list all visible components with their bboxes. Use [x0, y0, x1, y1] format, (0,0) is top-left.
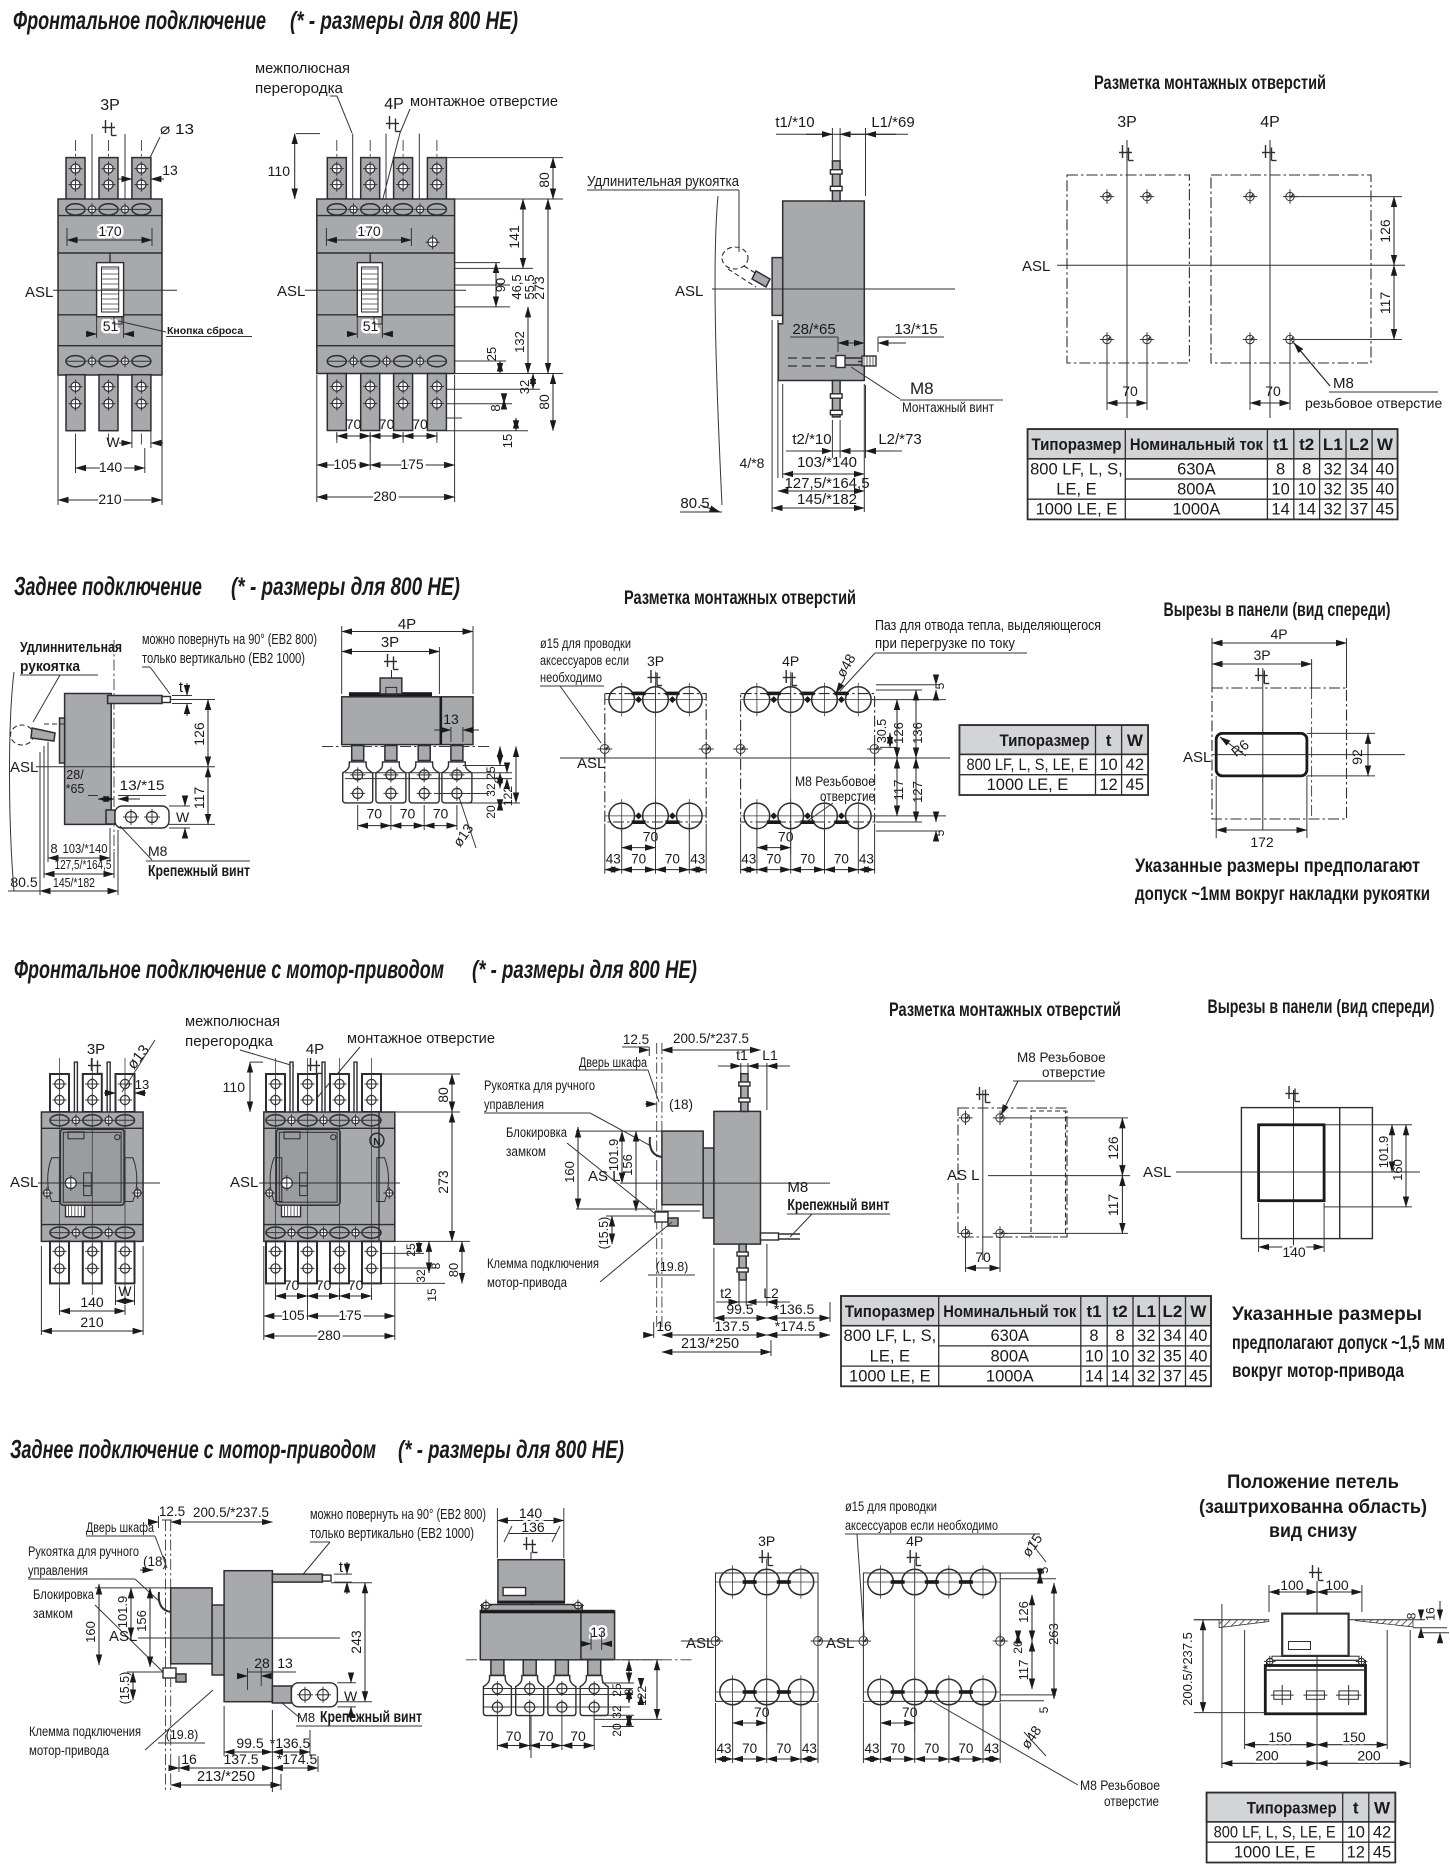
svg-text:W: W [176, 809, 190, 825]
svg-text:t: t [1353, 1799, 1359, 1818]
svg-text:5: 5 [933, 682, 947, 689]
svg-text:ASL: ASL [826, 1635, 854, 1652]
svg-text:только вертикально (EB2 1000): только вертикально (EB2 1000) [310, 1526, 474, 1542]
svg-text:80.5: 80.5 [680, 495, 709, 512]
svg-text:8: 8 [1089, 1327, 1098, 1345]
svg-text:межполюсная: межполюсная [185, 1014, 280, 1030]
svg-text:70: 70 [1122, 383, 1138, 399]
svg-text:42: 42 [1373, 1823, 1391, 1841]
svg-text:55,5: 55,5 [522, 274, 537, 299]
svg-text:28/: 28/ [66, 768, 84, 782]
svg-text:Рукоятка для ручного: Рукоятка для ручного [28, 1544, 139, 1559]
svg-text:Положение петель: Положение петель [1227, 1471, 1399, 1493]
svg-text:15: 15 [425, 1288, 439, 1302]
svg-text:ASL: ASL [1143, 1164, 1171, 1181]
svg-text:70: 70 [1265, 383, 1281, 399]
svg-text:137.5: 137.5 [714, 1318, 749, 1334]
svg-text:t: t [1106, 731, 1112, 750]
svg-text:101.9: 101.9 [1376, 1136, 1391, 1169]
svg-text:Типоразмер: Типоразмер [1000, 731, 1090, 750]
svg-text:70: 70 [834, 852, 849, 867]
svg-text:5: 5 [1037, 1706, 1051, 1713]
svg-text:43: 43 [690, 852, 705, 867]
svg-text:70: 70 [379, 416, 395, 432]
svg-text:12.5: 12.5 [623, 1032, 649, 1047]
svg-text:103/*140: 103/*140 [797, 454, 857, 471]
svg-text:80: 80 [536, 172, 552, 188]
svg-text:175: 175 [338, 1307, 362, 1323]
svg-text:8: 8 [1116, 1327, 1125, 1345]
svg-text:12.5: 12.5 [159, 1504, 185, 1519]
svg-text:32: 32 [517, 380, 532, 394]
svg-text:Заднее подключение с мотор-при: Заднее подключение с мотор-приводом [10, 1434, 376, 1464]
svg-text:(15.5): (15.5) [118, 1672, 132, 1705]
svg-text:136: 136 [521, 1519, 545, 1535]
svg-text:Указанные размеры: Указанные размеры [1232, 1303, 1422, 1325]
svg-text:L1/*69: L1/*69 [871, 114, 914, 131]
svg-text:20: 20 [610, 1723, 624, 1737]
svg-text:32: 32 [484, 783, 498, 797]
svg-text:L2/*73: L2/*73 [878, 431, 921, 448]
svg-text:управления: управления [28, 1563, 88, 1578]
svg-text:140: 140 [80, 1294, 104, 1310]
svg-text:ASL: ASL [277, 283, 305, 300]
svg-text:Клемма подключения: Клемма подключения [29, 1724, 141, 1739]
svg-text:8: 8 [1302, 460, 1311, 478]
svg-text:101.9: 101.9 [115, 1596, 130, 1629]
svg-text:70: 70 [538, 1728, 554, 1744]
svg-text:Крепежный винт: Крепежный винт [787, 1197, 889, 1214]
svg-text:вокруг мотор-привода: вокруг мотор-привода [1232, 1360, 1404, 1382]
svg-text:4/*8: 4/*8 [740, 455, 765, 471]
svg-text:Блокировка: Блокировка [506, 1125, 567, 1140]
svg-text:70: 70 [367, 806, 383, 822]
svg-text:210: 210 [80, 1314, 104, 1330]
svg-text:150: 150 [1268, 1729, 1292, 1745]
svg-text:117: 117 [191, 787, 207, 810]
svg-text:150: 150 [1342, 1729, 1366, 1745]
svg-text:L1: L1 [1136, 1302, 1156, 1321]
svg-text:t1: t1 [736, 1047, 748, 1063]
svg-text:800 LF, L, S,: 800 LF, L, S, [1030, 460, 1123, 478]
svg-text:51: 51 [103, 318, 119, 334]
svg-text:перегородка: перегородка [185, 1034, 274, 1050]
svg-text:13/*15: 13/*15 [894, 321, 937, 338]
svg-text:(15.5): (15.5) [597, 1217, 611, 1250]
svg-text:отверстие: отверстие [1042, 1065, 1105, 1080]
svg-text:L1: L1 [1323, 435, 1343, 454]
svg-text:70: 70 [346, 416, 362, 432]
svg-text:можно повернуть на 90° (EB2 80: можно повернуть на 90° (EB2 800) [310, 1507, 486, 1523]
svg-text:40: 40 [1189, 1327, 1207, 1345]
svg-text:10: 10 [1298, 481, 1316, 499]
svg-text:16: 16 [181, 1751, 197, 1767]
svg-text:аксессуаров если: аксессуаров если [540, 653, 629, 668]
svg-text:105: 105 [281, 1307, 305, 1323]
svg-text:80: 80 [446, 1263, 461, 1277]
svg-text:200: 200 [1357, 1748, 1381, 1764]
svg-text:800 LF, L, S, LE, E: 800 LF, L, S, LE, E [966, 756, 1088, 774]
svg-text:Типоразмер: Типоразмер [845, 1302, 935, 1321]
svg-text:263: 263 [1046, 1623, 1061, 1645]
svg-text:t2: t2 [720, 1285, 732, 1301]
svg-text:1000 LE, E: 1000 LE, E [1036, 501, 1118, 519]
svg-text:160: 160 [83, 1621, 98, 1643]
svg-text:Фронтальное подключение: Фронтальное подключение [13, 5, 266, 35]
svg-text:Фронтальное подключение с мото: Фронтальное подключение с мотор-приводом [14, 954, 444, 984]
svg-text:Типоразмер: Типоразмер [1031, 435, 1121, 454]
svg-text:Блокировка: Блокировка [33, 1587, 94, 1602]
svg-text:Дверь шкафа: Дверь шкафа [86, 1520, 154, 1535]
svg-text:t2: t2 [1113, 1302, 1128, 1321]
svg-text:8: 8 [492, 776, 506, 783]
svg-text:*136.5: *136.5 [774, 1301, 815, 1317]
svg-text:Дверь шкафа: Дверь шкафа [579, 1055, 647, 1070]
svg-text:14: 14 [1298, 501, 1316, 519]
svg-text:3P: 3P [647, 653, 664, 669]
svg-text:LE, E: LE, E [870, 1347, 910, 1365]
svg-text:70: 70 [643, 829, 659, 845]
svg-text:70: 70 [570, 1728, 586, 1744]
svg-text:170: 170 [98, 223, 122, 239]
svg-text:M8: M8 [787, 1179, 808, 1196]
svg-text:4P: 4P [1270, 626, 1287, 642]
svg-text:126: 126 [1377, 219, 1393, 243]
svg-text:W: W [1190, 1302, 1207, 1321]
svg-text:Номинальный ток: Номинальный ток [943, 1302, 1076, 1321]
svg-text:4P: 4P [1260, 114, 1280, 131]
svg-text:12: 12 [1347, 1844, 1365, 1862]
svg-text:280: 280 [317, 1327, 341, 1343]
svg-text:перегородка: перегородка [255, 81, 344, 97]
svg-text:(18): (18) [669, 1097, 693, 1112]
svg-text:8: 8 [50, 841, 57, 856]
svg-text:126: 126 [891, 722, 906, 744]
svg-text:межполюсная: межполюсная [255, 61, 350, 77]
svg-text:L2: L2 [763, 1285, 779, 1301]
svg-text:25: 25 [484, 347, 499, 361]
svg-text:140: 140 [99, 459, 123, 475]
svg-text:5: 5 [1037, 1566, 1051, 1573]
svg-text:43: 43 [741, 852, 756, 867]
svg-text:156: 156 [620, 1154, 635, 1176]
svg-text:99.5: 99.5 [236, 1735, 263, 1751]
svg-text:800A: 800A [1177, 481, 1216, 499]
svg-text:13/*15: 13/*15 [120, 778, 165, 793]
svg-text:70: 70 [924, 1741, 939, 1756]
svg-text:34: 34 [1163, 1327, 1181, 1345]
svg-text:35: 35 [1350, 481, 1368, 499]
svg-text:92: 92 [1349, 749, 1365, 765]
svg-text:13: 13 [277, 1655, 293, 1671]
svg-text:*174.5: *174.5 [277, 1751, 318, 1767]
svg-text:32: 32 [1324, 460, 1342, 478]
svg-text:(19.8): (19.8) [656, 1260, 689, 1274]
svg-text:213/*250: 213/*250 [681, 1336, 739, 1352]
svg-text:ASL: ASL [109, 1628, 137, 1645]
svg-text:Указанные размеры предполагают: Указанные размеры предполагают [1135, 855, 1420, 877]
svg-text:Разметка монтажных отверстий: Разметка монтажных отверстий [889, 1000, 1121, 1021]
svg-text:117: 117 [1377, 292, 1393, 315]
svg-text:Удлиннительная: Удлиннительная [20, 639, 122, 656]
svg-text:172: 172 [1250, 834, 1274, 850]
svg-text:Разметка монтажных отверстий: Разметка монтажных отверстий [1094, 73, 1326, 94]
svg-text:14: 14 [1271, 501, 1289, 519]
svg-text:W: W [1374, 1799, 1391, 1818]
svg-text:43: 43 [802, 1741, 817, 1756]
svg-text:L2: L2 [1349, 435, 1369, 454]
svg-text:M8: M8 [1333, 375, 1354, 392]
svg-text:132: 132 [512, 331, 527, 353]
svg-text:LE, E: LE, E [1056, 481, 1096, 499]
svg-text:43: 43 [859, 852, 874, 867]
svg-text:800 LF, L, S, LE, E: 800 LF, L, S, LE, E [1214, 1823, 1336, 1841]
svg-text:3P: 3P [87, 1041, 105, 1058]
svg-text:200.5/*237.5: 200.5/*237.5 [673, 1031, 749, 1046]
svg-text:8: 8 [1405, 1612, 1419, 1619]
svg-text:160: 160 [562, 1161, 577, 1183]
svg-text:1000A: 1000A [1172, 501, 1220, 519]
svg-text:t1: t1 [1273, 435, 1288, 454]
svg-text:14: 14 [1111, 1368, 1129, 1386]
svg-text:предполагают допуск ~1,5 мм: предполагают допуск ~1,5 мм [1232, 1332, 1445, 1354]
svg-text:43: 43 [606, 852, 621, 867]
svg-text:замком: замком [33, 1606, 73, 1621]
svg-text:(19.8): (19.8) [166, 1728, 199, 1742]
svg-text:70: 70 [631, 852, 646, 867]
svg-text:1000 LE, E: 1000 LE, E [987, 776, 1069, 794]
svg-text:127,5/*164,5: 127,5/*164,5 [784, 475, 869, 492]
svg-text:126: 126 [1105, 1136, 1121, 1160]
svg-text:10: 10 [1085, 1347, 1103, 1365]
svg-text:12: 12 [1099, 776, 1117, 794]
svg-text:t1/*10: t1/*10 [775, 114, 814, 131]
svg-text:70: 70 [400, 806, 416, 822]
svg-text:t2/*10: t2/*10 [792, 431, 831, 448]
svg-text:800 LF, L, S,: 800 LF, L, S, [844, 1327, 937, 1345]
svg-text:вид снизу: вид снизу [1269, 1520, 1357, 1542]
svg-text:10: 10 [1271, 481, 1289, 499]
svg-text:80: 80 [536, 394, 552, 410]
svg-text:43: 43 [717, 1741, 732, 1756]
svg-text:70: 70 [902, 1704, 918, 1720]
svg-text:Клемма подключения: Клемма подключения [487, 1256, 599, 1271]
svg-text:273: 273 [435, 1170, 451, 1194]
svg-text:122: 122 [635, 1686, 649, 1706]
svg-text:42: 42 [1126, 756, 1144, 774]
svg-text:99.5: 99.5 [726, 1301, 753, 1317]
svg-text:ASL: ASL [686, 1635, 714, 1652]
svg-text:122: 122 [501, 786, 515, 806]
svg-text:15: 15 [500, 434, 515, 448]
svg-text:800A: 800A [990, 1347, 1029, 1365]
svg-text:70: 70 [412, 416, 428, 432]
svg-text:32: 32 [1137, 1327, 1155, 1345]
svg-text:(* - размеры для 800 НЕ): (* - размеры для 800 НЕ) [472, 956, 697, 984]
svg-text:126: 126 [191, 722, 207, 746]
svg-text:37: 37 [1163, 1368, 1181, 1386]
svg-text:8: 8 [488, 404, 503, 411]
svg-text:Заднее подключение: Заднее подключение [14, 571, 202, 601]
svg-text:45: 45 [1126, 776, 1144, 794]
svg-text:45: 45 [1189, 1368, 1207, 1386]
svg-text:80.5: 80.5 [10, 874, 37, 890]
svg-text:175: 175 [400, 456, 424, 472]
svg-text:140: 140 [1282, 1244, 1306, 1260]
svg-text:100: 100 [1280, 1577, 1304, 1593]
svg-text:⌀ 13: ⌀ 13 [160, 121, 194, 138]
svg-text:Вырезы в панели (вид спереди): Вырезы в панели (вид спереди) [1164, 600, 1391, 621]
svg-text:70: 70 [800, 852, 815, 867]
svg-text:110: 110 [223, 1079, 246, 1095]
svg-text:отверстие: отверстие [820, 789, 875, 804]
svg-text:L1: L1 [762, 1047, 778, 1063]
svg-text:Крепежный винт: Крепежный винт [320, 1709, 422, 1726]
svg-text:при перегрузке по току: при перегрузке по току [875, 636, 1016, 652]
svg-text:32: 32 [414, 1269, 428, 1283]
svg-text:Разметка монтажных отверстий: Разметка монтажных отверстий [624, 588, 856, 609]
svg-text:*65: *65 [66, 782, 85, 796]
svg-text:*136.5: *136.5 [270, 1735, 311, 1751]
svg-text:40: 40 [1376, 481, 1394, 499]
svg-text:10: 10 [1111, 1347, 1129, 1365]
svg-text:M8 Резьбовое: M8 Резьбовое [1017, 1050, 1106, 1065]
svg-text:30.5: 30.5 [875, 719, 889, 743]
svg-text:32: 32 [1137, 1347, 1155, 1365]
svg-text:N: N [373, 1137, 380, 1148]
svg-text:AS L: AS L [947, 1167, 980, 1184]
svg-text:10: 10 [1347, 1823, 1365, 1841]
svg-text:32: 32 [1324, 501, 1342, 519]
svg-text:ASL: ASL [10, 1174, 38, 1191]
svg-text:34: 34 [1350, 460, 1368, 478]
svg-text:145/*182: 145/*182 [797, 491, 857, 508]
svg-text:630A: 630A [990, 1327, 1029, 1345]
svg-text:51: 51 [363, 318, 379, 334]
svg-text:13: 13 [135, 1077, 149, 1092]
svg-text:43: 43 [864, 1741, 879, 1756]
svg-text:4P: 4P [384, 96, 404, 113]
svg-text:Номинальный ток: Номинальный ток [1130, 435, 1263, 454]
svg-text:100: 100 [1325, 1577, 1349, 1593]
svg-text:13: 13 [590, 1624, 606, 1640]
svg-text:мотор-привода: мотор-привода [487, 1275, 567, 1290]
svg-text:3P: 3P [100, 97, 120, 114]
svg-text:70: 70 [975, 1249, 991, 1265]
svg-text:отверстие: отверстие [1104, 1794, 1159, 1809]
svg-text:4P: 4P [782, 653, 799, 669]
svg-text:(* - размеры для 800 НЕ): (* - размеры для 800 НЕ) [290, 7, 518, 35]
svg-text:1000 LE, E: 1000 LE, E [849, 1368, 931, 1386]
svg-text:8: 8 [1276, 460, 1285, 478]
svg-text:Кнопка сброса: Кнопка сброса [167, 325, 243, 337]
svg-text:70: 70 [506, 1728, 522, 1744]
svg-text:70: 70 [890, 1741, 905, 1756]
svg-text:(* - размеры для 800 НЕ): (* - размеры для 800 НЕ) [398, 1436, 624, 1464]
svg-text:допуск ~1мм вокруг накладки ру: допуск ~1мм вокруг накладки рукоятки [1135, 883, 1430, 905]
svg-text:35: 35 [1163, 1347, 1181, 1365]
svg-text:резьбовое отверстие: резьбовое отверстие [1305, 395, 1443, 411]
svg-text:210: 210 [98, 491, 122, 507]
svg-text:Типоразмер: Типоразмер [1247, 1799, 1337, 1818]
svg-text:70: 70 [754, 1704, 770, 1720]
svg-text:M8: M8 [148, 843, 168, 859]
svg-text:243: 243 [348, 1630, 364, 1654]
svg-text:70: 70 [776, 1741, 791, 1756]
svg-text:W: W [344, 1688, 358, 1704]
svg-text:3P: 3P [381, 634, 399, 651]
svg-text:127: 127 [910, 781, 925, 803]
svg-text:3P: 3P [1253, 647, 1270, 663]
svg-text:ø15 для проводки: ø15 для проводки [845, 1499, 937, 1514]
svg-text:8: 8 [429, 1262, 443, 1269]
svg-text:32: 32 [1324, 481, 1342, 499]
svg-text:26: 26 [1011, 1640, 1025, 1654]
svg-text:13: 13 [162, 162, 178, 178]
svg-text:необходимо: необходимо [540, 670, 602, 685]
svg-text:70: 70 [316, 1277, 332, 1293]
svg-text:монтажное отверстие: монтажное отверстие [347, 1031, 495, 1047]
svg-text:W: W [1377, 435, 1394, 454]
svg-text:Паз для отвода тепла, выделяющ: Паз для отвода тепла, выделяющегося [875, 618, 1101, 634]
svg-text:70: 70 [958, 1741, 973, 1756]
svg-text:1000 LE, E: 1000 LE, E [1234, 1844, 1316, 1862]
svg-text:W: W [1127, 731, 1144, 750]
svg-text:213/*250: 213/*250 [197, 1769, 255, 1785]
svg-text:37: 37 [1350, 501, 1368, 519]
svg-text:101.9: 101.9 [606, 1139, 621, 1172]
svg-text:рукоятка: рукоятка [20, 658, 81, 675]
svg-text:(18): (18) [143, 1554, 167, 1569]
svg-text:мотор-привода: мотор-привода [29, 1743, 109, 1758]
svg-text:8: 8 [622, 1688, 636, 1695]
svg-text:аксессуаров если необходимо: аксессуаров если необходимо [845, 1518, 998, 1533]
svg-text:25: 25 [404, 1243, 418, 1257]
svg-text:4P: 4P [398, 616, 416, 633]
svg-text:W: W [118, 1283, 132, 1299]
svg-text:126: 126 [1016, 1601, 1031, 1623]
svg-text:280: 280 [373, 488, 397, 504]
svg-text:3P: 3P [1117, 114, 1137, 131]
svg-text:28: 28 [254, 1655, 270, 1671]
svg-text:ASL: ASL [675, 283, 703, 300]
svg-text:ASL: ASL [1183, 749, 1211, 766]
svg-text:ø15 для проводки: ø15 для проводки [540, 636, 631, 651]
svg-text:Монтажный винт: Монтажный винт [902, 399, 994, 415]
svg-text:14: 14 [1085, 1368, 1103, 1386]
svg-text:90: 90 [493, 278, 508, 292]
svg-text:127,5/*164,5: 127,5/*164,5 [55, 857, 112, 872]
svg-text:200: 200 [1255, 1748, 1279, 1764]
svg-text:3P: 3P [758, 1533, 775, 1549]
svg-text:43: 43 [984, 1741, 999, 1756]
svg-text:замком: замком [506, 1144, 546, 1159]
svg-text:200.5/*237.5: 200.5/*237.5 [1180, 1632, 1195, 1706]
svg-text:13: 13 [443, 711, 459, 727]
svg-text:(* - размеры для 800 НЕ): (* - размеры для 800 НЕ) [231, 573, 460, 601]
svg-text:4P: 4P [906, 1533, 923, 1549]
svg-text:5: 5 [933, 829, 947, 836]
svg-text:45: 45 [1373, 1844, 1391, 1862]
svg-text:170: 170 [357, 223, 381, 239]
svg-text:ASL: ASL [10, 759, 38, 776]
svg-text:103/*140: 103/*140 [63, 841, 108, 856]
svg-text:ASL: ASL [25, 284, 53, 301]
svg-text:только вертикально (EB2 1000): только вертикально (EB2 1000) [142, 651, 305, 667]
svg-text:110: 110 [268, 163, 291, 179]
svg-text:32: 32 [610, 1705, 624, 1719]
svg-text:70: 70 [778, 829, 794, 845]
